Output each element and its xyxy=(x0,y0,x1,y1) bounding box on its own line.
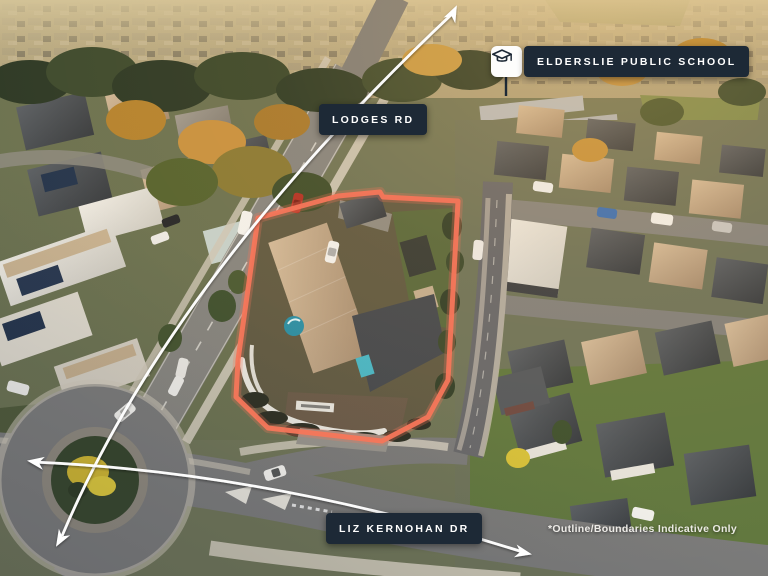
liz-kernohan-arrow xyxy=(26,454,533,561)
school-icon xyxy=(491,46,522,77)
lodges-rd-label: LODGES RD xyxy=(319,104,427,135)
aerial-real-estate-image: ELDERSLIE PUBLIC SCHOOL LODGES RD LIZ KE… xyxy=(0,0,768,576)
property-outline xyxy=(236,192,458,441)
liz-kernohan-dr-label: LIZ KERNOHAN DR xyxy=(326,513,482,544)
annotation-overlay xyxy=(0,0,768,576)
school-label: ELDERSLIE PUBLIC SCHOOL xyxy=(524,46,749,77)
graduation-cap-icon xyxy=(491,46,513,68)
arrowhead-east xyxy=(514,545,533,561)
boundaries-disclaimer: *Outline/Boundaries Indicative Only xyxy=(548,523,737,535)
arrowhead-southwest xyxy=(50,529,70,550)
